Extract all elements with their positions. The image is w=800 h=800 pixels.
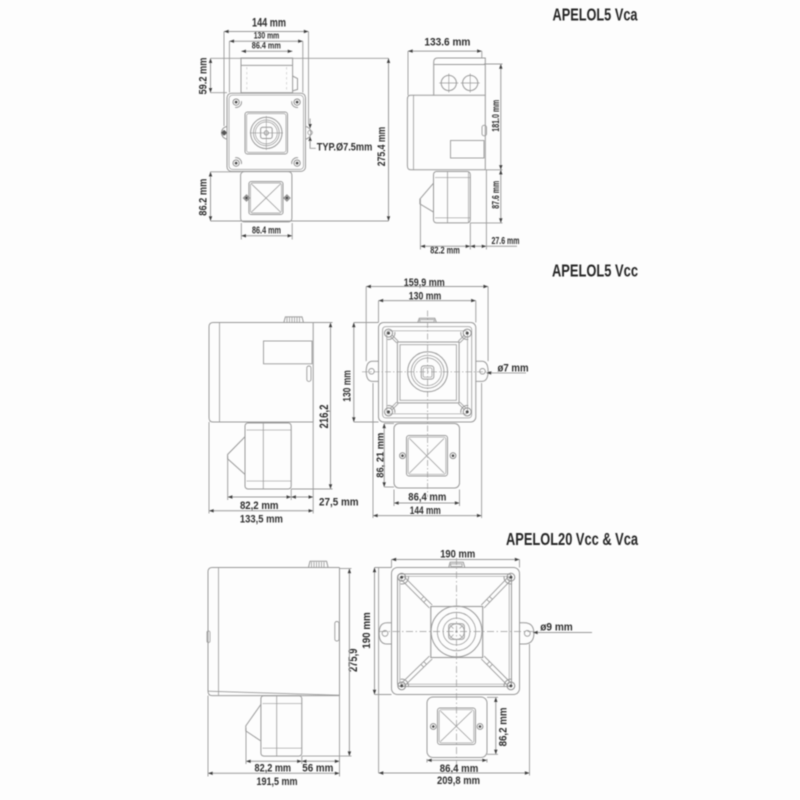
svg-text:275.4 mm: 275.4 mm [376,127,388,167]
svg-text:27,5 mm: 27,5 mm [319,496,359,508]
svg-text:APELOL5 Vcc: APELOL5 Vcc [552,261,638,281]
svg-text:59.2 mm: 59.2 mm [197,58,209,95]
svg-text:275,9: 275,9 [348,649,360,673]
svg-text:82,2 mm: 82,2 mm [240,500,279,512]
svg-text:86,2 mm: 86,2 mm [497,707,509,746]
svg-text:190 mm: 190 mm [361,612,373,649]
svg-text:86.2 mm: 86.2 mm [197,179,209,216]
svg-text:144 mm: 144 mm [252,16,286,29]
svg-text:209,8 mm: 209,8 mm [437,775,480,787]
svg-text:APELOL20 Vcc & Vca: APELOL20 Vcc & Vca [506,529,638,549]
svg-text:130 mm: 130 mm [342,370,354,402]
svg-text:86,4 mm: 86,4 mm [408,492,446,504]
svg-text:27.6 mm: 27.6 mm [492,236,520,247]
svg-text:86.4 mm: 86.4 mm [252,41,281,52]
svg-text:133.6 mm: 133.6 mm [424,36,470,48]
svg-text:191,5 mm: 191,5 mm [257,776,298,788]
svg-text:86.4 mm: 86.4 mm [252,225,281,236]
svg-text:ø9 mm: ø9 mm [540,621,573,633]
svg-text:133,5 mm: 133,5 mm [240,513,283,525]
svg-text:216,2: 216,2 [319,405,331,429]
svg-text:82.2 mm: 82.2 mm [430,246,460,257]
svg-text:190 mm: 190 mm [440,548,475,560]
svg-text:TYP.Ø7.5mm: TYP.Ø7.5mm [317,141,373,153]
svg-text:APELOL5 Vca: APELOL5 Vca [553,4,638,24]
